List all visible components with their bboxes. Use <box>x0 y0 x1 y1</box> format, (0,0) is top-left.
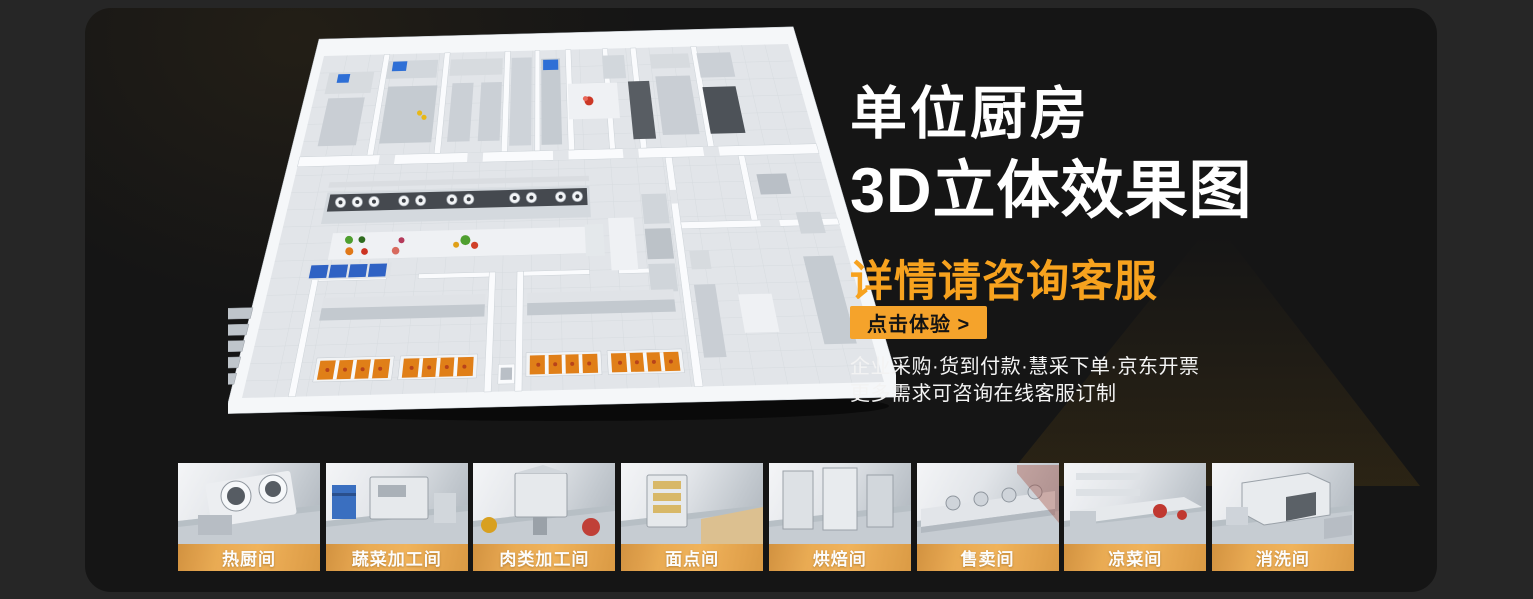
thumb-art-vegetable-processing <box>326 463 468 544</box>
kitchen-3d-floorplan <box>228 22 896 437</box>
room-label: 面点间 <box>621 544 763 571</box>
room-label: 蔬菜加工间 <box>326 544 468 571</box>
room-label: 肉类加工间 <box>473 544 615 571</box>
page-title-line1: 单位厨房 <box>850 68 1090 150</box>
subtitle: 详情请咨询客服 <box>850 247 1158 309</box>
thumb-washing-room[interactable]: 消洗间 <box>1212 463 1354 571</box>
thumb-art-hot-kitchen <box>178 463 320 544</box>
thumb-art-meat-processing <box>473 463 615 544</box>
thumb-sales-room[interactable]: 售卖间 <box>917 463 1059 571</box>
thumb-art-sales-room <box>917 463 1059 544</box>
info-line-2: 更多需求可咨询在线客服订制 <box>850 377 1117 406</box>
thumb-baking-room[interactable]: 烘焙间 <box>769 463 911 571</box>
room-label: 售卖间 <box>917 544 1059 571</box>
room-label: 烘焙间 <box>769 544 911 571</box>
thumb-pastry-room[interactable]: 面点间 <box>621 463 763 571</box>
room-label: 凉菜间 <box>1064 544 1206 571</box>
thumb-art-baking-room <box>769 463 911 544</box>
cta-button[interactable]: 点击体验 > <box>850 306 987 339</box>
page-title-line2: 3D立体效果图 <box>850 140 1253 231</box>
thumb-vegetable-processing[interactable]: 蔬菜加工间 <box>326 463 468 571</box>
thumb-meat-processing[interactable]: 肉类加工间 <box>473 463 615 571</box>
info-line-1: 企业采购·货到付款·慧采下单·京东开票 <box>850 350 1199 379</box>
thumb-hot-kitchen[interactable]: 热厨间 <box>178 463 320 571</box>
thumb-art-pastry-room <box>621 463 763 544</box>
room-label: 消洗间 <box>1212 544 1354 571</box>
hero-text-block: 单位厨房 3D立体效果图 详情请咨询客服 点击体验 > 企业采购·货到付款·慧采… <box>850 0 1350 460</box>
promo-banner: 单位厨房 3D立体效果图 详情请咨询客服 点击体验 > 企业采购·货到付款·慧采… <box>0 0 1533 599</box>
room-thumbnail-row: 热厨间 蔬菜加工间 肉类加工间 面点间 烘焙间 售卖间 凉菜间 消洗间 <box>178 463 1354 571</box>
thumb-art-cold-dish-room <box>1064 463 1206 544</box>
thumb-cold-dish-room[interactable]: 凉菜间 <box>1064 463 1206 571</box>
room-label: 热厨间 <box>178 544 320 571</box>
thumb-art-washing-room <box>1212 463 1354 544</box>
